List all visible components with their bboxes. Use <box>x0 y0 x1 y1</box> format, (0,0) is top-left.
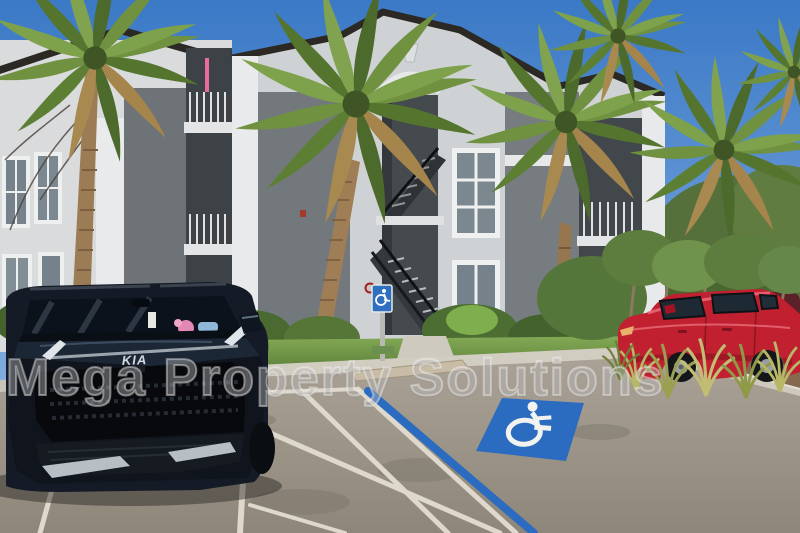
kia-badge: KIA <box>122 352 148 368</box>
suv: KIA <box>0 282 282 506</box>
photo-scene: KIA <box>0 0 800 533</box>
property-photo: KIA Mega Property Solutions <box>0 0 800 533</box>
parking-permit <box>148 312 156 328</box>
window <box>452 148 500 322</box>
